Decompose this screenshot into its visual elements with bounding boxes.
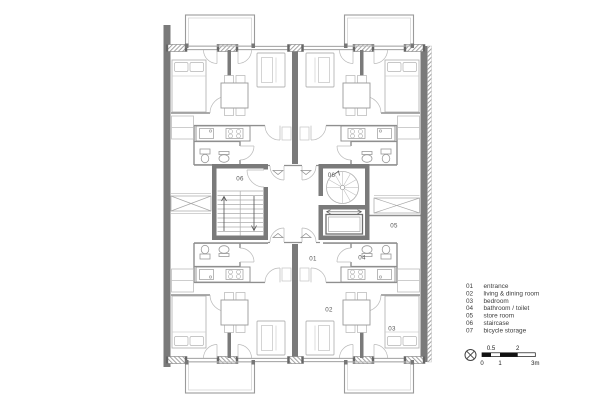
- legend-item: 04 bathroom / toilet: [466, 305, 530, 312]
- void-left: [171, 194, 211, 214]
- room-label-store-room: 05: [390, 223, 398, 230]
- apartment-top-right: [300, 50, 420, 165]
- legend-item: 07 bicycle storage: [466, 327, 527, 334]
- apartment-top-left: [171, 50, 291, 165]
- void-right: [374, 196, 420, 213]
- core-hall: [268, 166, 320, 243]
- legend-code: 05: [466, 313, 474, 320]
- floor-plan-page: 06 06 05 01 04 02 03 01 entrance 02 livi…: [0, 0, 600, 400]
- balcony-top-left: [185, 15, 255, 48]
- legend-code: 01: [466, 283, 474, 290]
- legend-item: 06 staircase: [466, 320, 510, 327]
- scale-tick: 0: [480, 361, 484, 367]
- wall-center-top: [292, 50, 298, 164]
- legend-item: 01 entrance: [466, 283, 509, 290]
- apartment-bottom-left: [171, 243, 291, 358]
- elevator-room: [319, 210, 370, 241]
- room-label-living: 02: [325, 307, 333, 314]
- legend-label: staircase: [484, 320, 510, 327]
- wall-center-bottom: [292, 244, 298, 358]
- hall-door-arcs: [270, 166, 316, 242]
- room-label-staircase-left: 06: [236, 176, 244, 183]
- legend-label: store room: [484, 313, 515, 320]
- legend-code: 03: [466, 298, 474, 305]
- vent-markers: [273, 171, 311, 238]
- scale-tick: 0.5: [487, 346, 496, 352]
- scale-tick: 2: [516, 346, 520, 352]
- legend-code: 07: [466, 327, 474, 334]
- balcony-bottom-right: [344, 360, 414, 393]
- legend: 01 entrance 02 living & dining room 03 b…: [466, 283, 539, 334]
- legend-code: 06: [466, 320, 474, 327]
- room-label-bathroom: 04: [358, 255, 366, 262]
- wall-right-insulation: [428, 46, 432, 362]
- legend-label: bathroom / toilet: [484, 305, 530, 312]
- scale-tick: 3m: [531, 361, 539, 367]
- scale-bar: 0.5 2 0 1 3m: [480, 346, 539, 367]
- legend-label: entrance: [484, 283, 509, 290]
- legend-code: 02: [466, 290, 474, 297]
- room-label-bedroom: 03: [388, 326, 396, 333]
- scale-tick: 1: [498, 361, 502, 367]
- legend-item: 05 store room: [466, 313, 514, 320]
- compass-icon: [465, 350, 476, 361]
- wall-right: [421, 46, 428, 362]
- wall-left: [164, 25, 171, 367]
- legend-label: living & dining room: [484, 290, 540, 297]
- floor-plan-canvas: 06 06 05 01 04 02 03 01 entrance 02 livi…: [0, 0, 600, 400]
- legend-label: bicycle storage: [484, 327, 527, 334]
- core: [171, 164, 421, 243]
- balcony-top-right: [344, 15, 414, 48]
- room-label-staircase-right: 06: [328, 172, 336, 179]
- legend-code: 04: [466, 305, 474, 312]
- balcony-bottom-left: [185, 360, 255, 393]
- legend-item: 03 bedroom: [466, 298, 509, 305]
- room-label-entrance: 01: [309, 256, 317, 263]
- legend-item: 02 living & dining room: [466, 290, 539, 297]
- legend-label: bedroom: [484, 298, 509, 305]
